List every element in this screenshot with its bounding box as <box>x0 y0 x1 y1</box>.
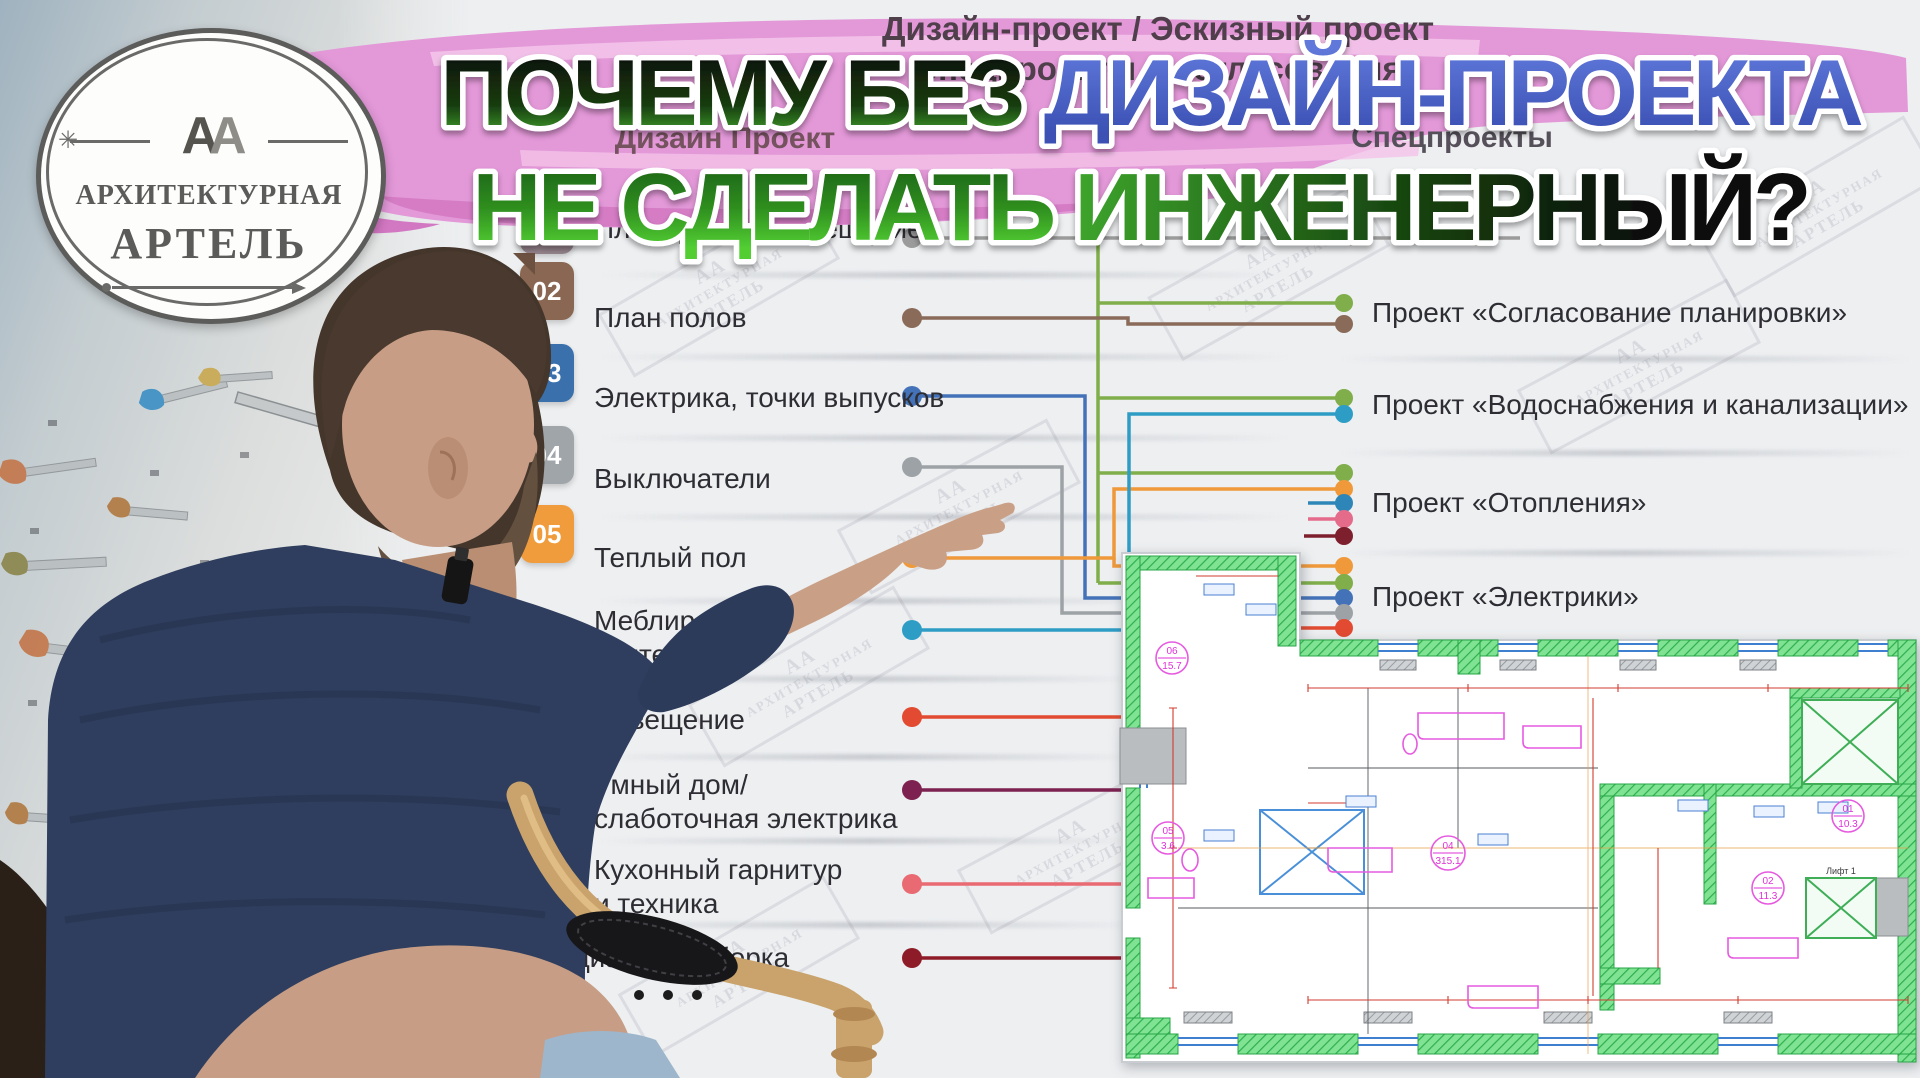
logo-arrow-icon <box>112 286 302 289</box>
logo-text-line2: АРТЕЛЬ <box>36 218 382 269</box>
studio-logo: ✳ АА АРХИТЕКТУРНАЯ АРТЕЛЬ <box>36 28 382 320</box>
presenter-jeans <box>540 1031 680 1078</box>
logo-monogram: АА <box>36 106 382 166</box>
video-frame: АА АРХИТЕКТУРНАЯАРТЕЛЬ АА АРХИТЕКТУРНАЯА… <box>0 0 1920 1078</box>
logo-text-line1: АРХИТЕКТУРНАЯ <box>36 180 382 212</box>
presenter-ear <box>428 437 468 499</box>
shirt-sleeve <box>638 585 794 712</box>
